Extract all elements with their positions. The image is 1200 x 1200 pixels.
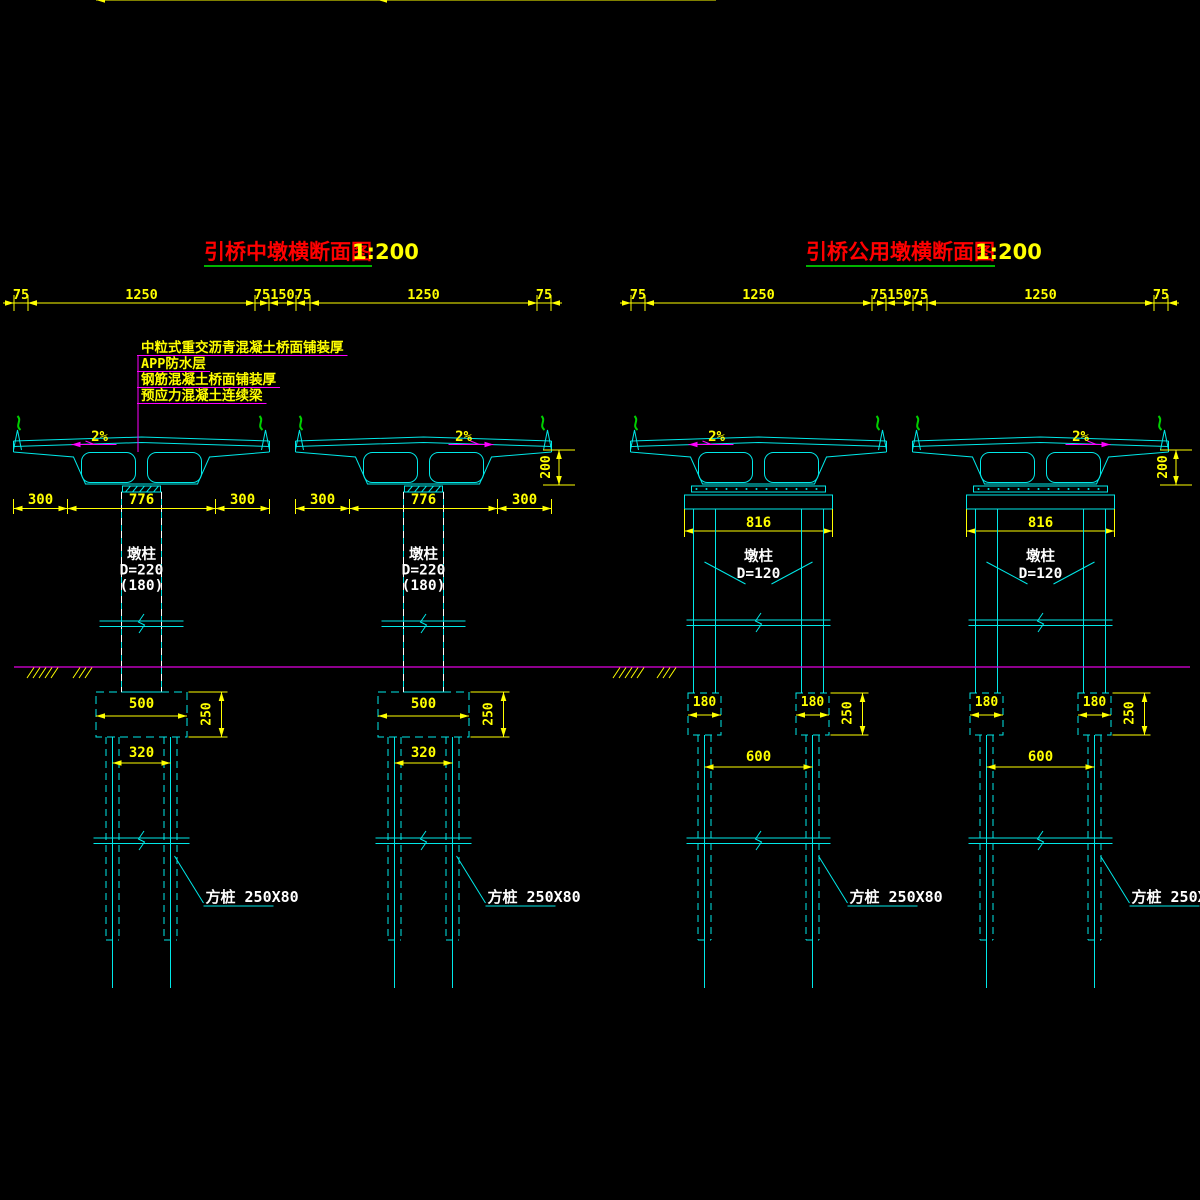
ground-hatch-icon — [39, 668, 46, 679]
dim-label: 300 — [512, 492, 537, 508]
dim-label: 250 — [841, 701, 856, 725]
dim-arrow — [1142, 726, 1148, 735]
dim-arrow — [712, 712, 721, 718]
ground-hatch-icon — [613, 668, 620, 679]
left-view-title: 引桥中墩横断面图1:200 — [204, 236, 439, 266]
deck-top-line — [14, 437, 270, 441]
top-dimension-row: 7512507515075125075 — [3, 287, 562, 311]
bearing-dot — [716, 488, 718, 490]
depth-dim: 200 — [539, 450, 575, 485]
slope-label: 2% — [455, 429, 472, 445]
dim-label: 1250 — [407, 287, 440, 303]
pavement-line — [631, 443, 887, 447]
dim-label: 320 — [129, 745, 154, 761]
dim-label: 75 — [871, 287, 887, 303]
bearing-dot — [726, 488, 728, 490]
dim-arrow — [1173, 476, 1179, 485]
dim-label: 75 — [630, 287, 646, 303]
box-cell — [699, 453, 753, 483]
dim-arrow — [1168, 300, 1177, 306]
bearing-dot — [1048, 488, 1050, 490]
pavement-line — [296, 443, 552, 447]
drawing-canvas[interactable]: 75125075150751250752%2%墩柱D=220(180)30077… — [0, 0, 1200, 1200]
pavement-line — [14, 443, 270, 447]
dim-label: 75 — [295, 287, 311, 303]
dim-arrow — [162, 760, 171, 766]
dim-arrow — [444, 760, 453, 766]
dim-arrow — [14, 506, 23, 512]
pier-label: D=220 — [120, 563, 164, 579]
dim-arrow — [1142, 693, 1148, 702]
curb — [631, 430, 639, 450]
dim-arrow — [68, 506, 77, 512]
ground-hatch-icon — [631, 668, 638, 679]
bearing-dot — [1008, 488, 1010, 490]
dim-arrow — [967, 528, 976, 534]
ground-hatch-icon — [663, 668, 670, 679]
right-view-scale-text: 1:200 — [975, 240, 1042, 264]
pile-label: 方桩 250X80 — [206, 888, 299, 906]
bearing-dot — [816, 488, 818, 490]
bearing-dot — [978, 488, 980, 490]
bearing-dot — [988, 488, 990, 490]
dim-arrow — [796, 712, 805, 718]
dim-arrow — [1086, 764, 1095, 770]
pier-label: D=220 — [402, 563, 446, 579]
bearing-strip — [974, 486, 1108, 492]
top-dimension-row: 7512507515075125075 — [620, 287, 1179, 311]
ground-hatch-icon — [51, 668, 58, 679]
girder-section: 2% — [913, 416, 1169, 484]
ground-hatch-icon — [625, 668, 632, 679]
girder-outline — [296, 452, 552, 484]
pier-label: 墩柱 — [409, 545, 438, 563]
dim-arrow — [1173, 450, 1179, 459]
line — [154, 486, 159, 492]
bearing-dot — [766, 488, 768, 490]
bearing-dot — [776, 488, 778, 490]
bearing-dot — [746, 488, 748, 490]
curb — [879, 430, 887, 450]
dim-arrow — [1102, 712, 1111, 718]
girder-section: 2% — [631, 416, 887, 484]
box-cell — [1047, 453, 1101, 483]
bearing-dot — [1068, 488, 1070, 490]
ground — [14, 667, 1190, 678]
slope-label: 2% — [1072, 429, 1089, 445]
bearing-dot — [786, 488, 788, 490]
pier-label: 墩柱 — [744, 547, 773, 565]
left-view: 75125075150751250752%2%墩柱D=220(180)30077… — [3, 0, 716, 988]
bearing-dot — [1018, 488, 1020, 490]
pavement-line — [913, 443, 1169, 447]
girder-outline — [631, 452, 887, 484]
dim-label: 250 — [482, 702, 497, 726]
box-cell — [82, 453, 136, 483]
dim-arrow — [350, 506, 359, 512]
dim-label: 180 — [1083, 695, 1107, 710]
break-zigzag — [139, 614, 145, 633]
railing-icon — [300, 416, 303, 430]
dim-label: 816 — [746, 515, 771, 531]
depth-dim: 200 — [1156, 450, 1192, 485]
bearing-dot — [756, 488, 758, 490]
break-zigzag — [756, 613, 762, 632]
dim-label: 75 — [254, 287, 270, 303]
ground-hatch-icon — [45, 668, 52, 679]
dim-arrow — [395, 760, 404, 766]
dim-arrow — [543, 506, 552, 512]
railing-icon — [917, 416, 920, 430]
dim-label: 776 — [411, 492, 436, 508]
dim-arrow — [994, 712, 1003, 718]
dim-arrow — [685, 528, 694, 534]
curb — [14, 430, 22, 450]
ground-hatch-icon — [669, 668, 676, 679]
ground-hatch-icon — [33, 668, 40, 679]
dim-arrow — [556, 476, 562, 485]
dim-arrow — [310, 300, 319, 306]
railing-icon — [877, 416, 880, 430]
leader-line — [819, 856, 848, 903]
dim-arrow — [987, 764, 996, 770]
break-zigzag — [756, 831, 762, 850]
curb — [296, 430, 304, 450]
bearing-dot — [1028, 488, 1030, 490]
dim-arrow — [824, 528, 833, 534]
pile-label: 方桩 250X80 — [488, 888, 581, 906]
box-cell — [430, 453, 484, 483]
pile-label: 方桩 250X80 — [850, 888, 943, 906]
break-zigzag — [421, 831, 427, 850]
notes-block: 中粒式重交沥青混凝土桥面铺装厚APP防水层钢筋混凝土桥面铺装厚预应力混凝土连续梁 — [137, 339, 348, 452]
bearing-dot — [1098, 488, 1100, 490]
ground-hatch-icon — [657, 668, 664, 679]
dim-label: 600 — [746, 749, 771, 765]
dim-arrow — [378, 0, 387, 3]
dim-label: 320 — [411, 745, 436, 761]
dim-label: 600 — [1028, 749, 1053, 765]
dim-label: 75 — [1153, 287, 1169, 303]
dim-arrow — [59, 506, 68, 512]
dim-arrow — [460, 713, 469, 719]
dim-arrow — [804, 764, 813, 770]
ground-hatch-icon — [619, 668, 626, 679]
dim-arrow — [501, 728, 507, 737]
bearing-dot — [1088, 488, 1090, 490]
dim-label: 300 — [28, 492, 53, 508]
note-line: APP防水层 — [141, 355, 206, 372]
pile-label: 方桩 250X80 — [1132, 888, 1200, 906]
dim-arrow — [489, 506, 498, 512]
dim-label: 300 — [230, 492, 255, 508]
dim-arrow — [219, 692, 225, 701]
bearing-dot — [1078, 488, 1080, 490]
cap-beam — [967, 495, 1115, 509]
note-line: 预应力混凝土连续梁 — [141, 387, 263, 404]
dim-arrow — [927, 300, 936, 306]
curb — [262, 430, 270, 450]
dim-label: 816 — [1028, 515, 1053, 531]
dim-label: 1250 — [742, 287, 775, 303]
cad-viewport: 75125075150751250752%2%墩柱D=220(180)30077… — [0, 0, 1200, 1200]
dim-label: 1250 — [1024, 287, 1057, 303]
pier-label: 墩柱 — [1026, 547, 1055, 565]
bearing-dot — [1058, 488, 1060, 490]
dim-arrow — [860, 726, 866, 735]
left-view-title-text: 引桥中墩横断面图 — [204, 240, 372, 267]
dim-arrow — [341, 506, 350, 512]
deck-top-line — [631, 437, 887, 441]
note-line: 钢筋混凝土桥面铺装厚 — [141, 371, 276, 388]
pier-label: D=120 — [1019, 566, 1063, 582]
dim-arrow — [1106, 528, 1115, 534]
dim-arrow — [556, 450, 562, 459]
dim-arrow — [178, 713, 187, 719]
dim-arrow — [970, 712, 979, 718]
dim-arrow — [113, 760, 122, 766]
bearing-dot — [1038, 488, 1040, 490]
dim-label: 180 — [801, 695, 825, 710]
pier-label: (180) — [402, 578, 446, 594]
dim-arrow — [219, 728, 225, 737]
substructure: 墩柱D=220(180)300776300500250320方桩 250X80 — [296, 0, 717, 988]
dim-arrow — [296, 506, 305, 512]
dim-label: 250 — [200, 702, 215, 726]
railing-icon — [542, 416, 545, 430]
leader-line — [457, 856, 486, 903]
dim-label: 75 — [13, 287, 29, 303]
note-line: 中粒式重交沥青混凝土桥面铺装厚 — [141, 339, 344, 356]
dim-label: 180 — [975, 695, 999, 710]
box-cell — [981, 453, 1035, 483]
bearing-dot — [806, 488, 808, 490]
bearing-dot — [998, 488, 1000, 490]
bearing-dot — [696, 488, 698, 490]
pier-label: D=120 — [737, 566, 781, 582]
dim-arrow — [1078, 712, 1087, 718]
break-zigzag — [1038, 831, 1044, 850]
right-view-title-text: 引桥公用墩横断面图 — [806, 240, 995, 267]
leader-line — [175, 856, 204, 903]
right-view-title: 引桥公用墩横断面图1:200 — [806, 236, 1062, 266]
dim-label: 75 — [536, 287, 552, 303]
deck-top-line — [913, 437, 1169, 441]
curb — [1161, 430, 1169, 450]
depth-dim-label: 200 — [1156, 455, 1171, 479]
dim-arrow — [28, 300, 37, 306]
dim-arrow — [820, 712, 829, 718]
railing-icon — [1159, 416, 1162, 430]
dim-arrow — [1102, 442, 1111, 448]
girder-section: 2% — [296, 416, 552, 484]
ground-hatch-icon — [85, 668, 92, 679]
dim-arrow — [216, 506, 225, 512]
ground-hatch-icon — [637, 668, 644, 679]
dim-arrow — [688, 712, 697, 718]
dim-arrow — [378, 713, 387, 719]
dim-arrow — [96, 713, 105, 719]
substructure: 816墩柱D=120180180250600方桩 250X80 — [685, 486, 943, 988]
dim-label: 1250 — [125, 287, 158, 303]
dim-label: 180 — [693, 695, 717, 710]
left-view-scale-text: 1:200 — [352, 240, 419, 264]
dim-arrow — [485, 442, 494, 448]
bearing-dot — [736, 488, 738, 490]
dim-arrow — [860, 693, 866, 702]
slope-label: 2% — [708, 429, 725, 445]
dim-arrow — [551, 300, 560, 306]
dim-arrow — [261, 506, 270, 512]
slope-label: 2% — [91, 429, 108, 445]
girder-outline — [14, 452, 270, 484]
dim-label: 150 — [270, 287, 294, 303]
dim-arrow — [72, 442, 81, 448]
dim-label: 250 — [1123, 701, 1138, 725]
box-cell — [765, 453, 819, 483]
substructure: 墩柱D=220(180)300776300500250320方桩 250X80 — [14, 0, 717, 988]
depth-dim-label: 200 — [539, 455, 554, 479]
dim-arrow — [501, 692, 507, 701]
box-cell — [148, 453, 202, 483]
ground-hatch-icon — [73, 668, 80, 679]
cap-beam — [685, 495, 833, 509]
dim-arrow — [498, 506, 507, 512]
ground-hatch-icon — [27, 668, 34, 679]
box-cell — [364, 453, 418, 483]
dim-label: 150 — [887, 287, 911, 303]
railing-icon — [635, 416, 638, 430]
dim-arrow — [689, 442, 698, 448]
break-zigzag — [1038, 613, 1044, 632]
railing-icon — [260, 416, 263, 430]
girder-section: 2% — [14, 416, 270, 484]
pier-label: 墩柱 — [127, 545, 156, 563]
dim-label: 75 — [912, 287, 928, 303]
dim-arrow — [207, 506, 216, 512]
railing-icon — [18, 416, 21, 430]
dim-label: 500 — [411, 696, 436, 712]
deck-top-line — [296, 437, 552, 441]
right-view: 75125075150751250752%2%816墩柱D=1201801802… — [620, 287, 1200, 988]
dim-label: 300 — [310, 492, 335, 508]
break-zigzag — [421, 614, 427, 633]
dim-arrow — [645, 300, 654, 306]
substructure: 816墩柱D=120180180250600方桩 250X80 — [967, 486, 1200, 988]
girder-outline — [913, 452, 1169, 484]
bearing-dot — [796, 488, 798, 490]
curb — [544, 430, 552, 450]
ground-hatch-icon — [79, 668, 86, 679]
dim-label: 776 — [129, 492, 154, 508]
dim-label: 500 — [129, 696, 154, 712]
dim-arrow — [705, 764, 714, 770]
break-zigzag — [139, 831, 145, 850]
bearing-strip — [692, 486, 826, 492]
curb — [913, 430, 921, 450]
pier-label: (180) — [120, 578, 164, 594]
bearing-dot — [706, 488, 708, 490]
leader-line — [1101, 856, 1130, 903]
line — [436, 486, 441, 492]
